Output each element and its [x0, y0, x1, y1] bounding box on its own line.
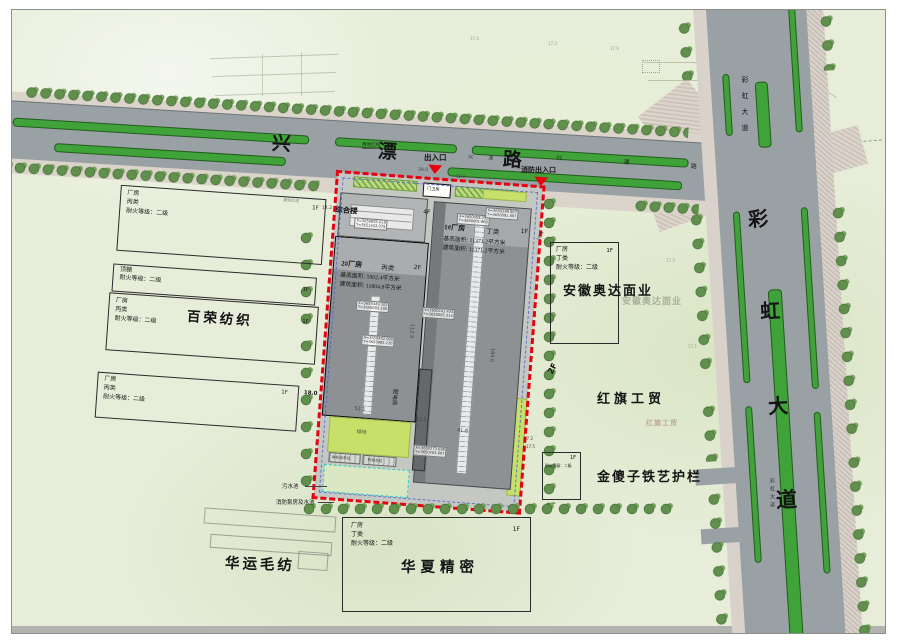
- site-plan-canvas: 门卫房 综合楼 4F 1#厂房 丁类 1F 基底面积: 11371.2平方米 建…: [0, 0, 897, 644]
- page-margin: [0, 0, 897, 9]
- page-margin: [0, 634, 897, 644]
- page-margin: [886, 0, 897, 644]
- drawing-border: [11, 9, 886, 634]
- page-margin: [0, 0, 11, 644]
